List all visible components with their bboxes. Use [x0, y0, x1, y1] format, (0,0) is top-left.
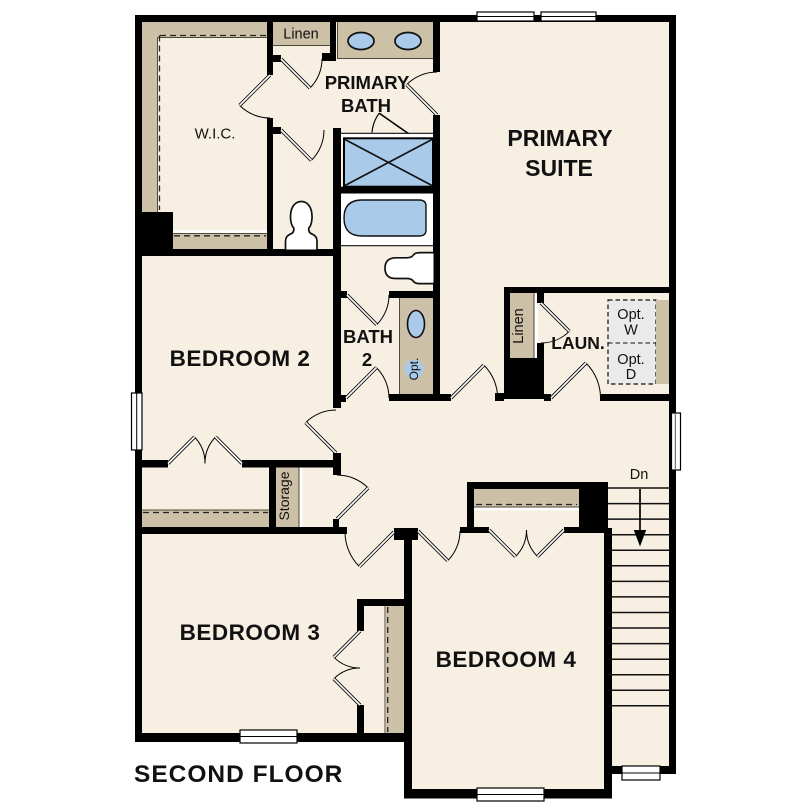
svg-text:BEDROOM 2: BEDROOM 2	[170, 346, 311, 371]
svg-text:Storage: Storage	[276, 471, 292, 520]
svg-text:BATH: BATH	[343, 326, 393, 347]
svg-text:Opt.: Opt.	[617, 352, 644, 368]
svg-text:SUITE: SUITE	[525, 155, 593, 181]
svg-text:Linen: Linen	[283, 27, 318, 43]
svg-text:D: D	[626, 367, 636, 383]
svg-text:Linen: Linen	[511, 308, 527, 343]
svg-text:PRIMARY: PRIMARY	[325, 72, 410, 93]
svg-text:Dn: Dn	[630, 467, 649, 483]
svg-text:W: W	[624, 323, 638, 339]
svg-text:Opt.: Opt.	[617, 307, 644, 323]
svg-text:W.I.C.: W.I.C.	[195, 126, 236, 143]
svg-text:BEDROOM 3: BEDROOM 3	[180, 620, 321, 645]
svg-text:BATH: BATH	[341, 95, 391, 116]
svg-text:Opt.: Opt.	[407, 358, 421, 381]
svg-text:2: 2	[362, 349, 372, 370]
svg-text:PRIMARY: PRIMARY	[507, 125, 612, 151]
svg-text:BEDROOM 4: BEDROOM 4	[436, 647, 577, 672]
svg-text:SECOND FLOOR: SECOND FLOOR	[134, 761, 343, 788]
svg-text:LAUN.: LAUN.	[551, 333, 604, 353]
